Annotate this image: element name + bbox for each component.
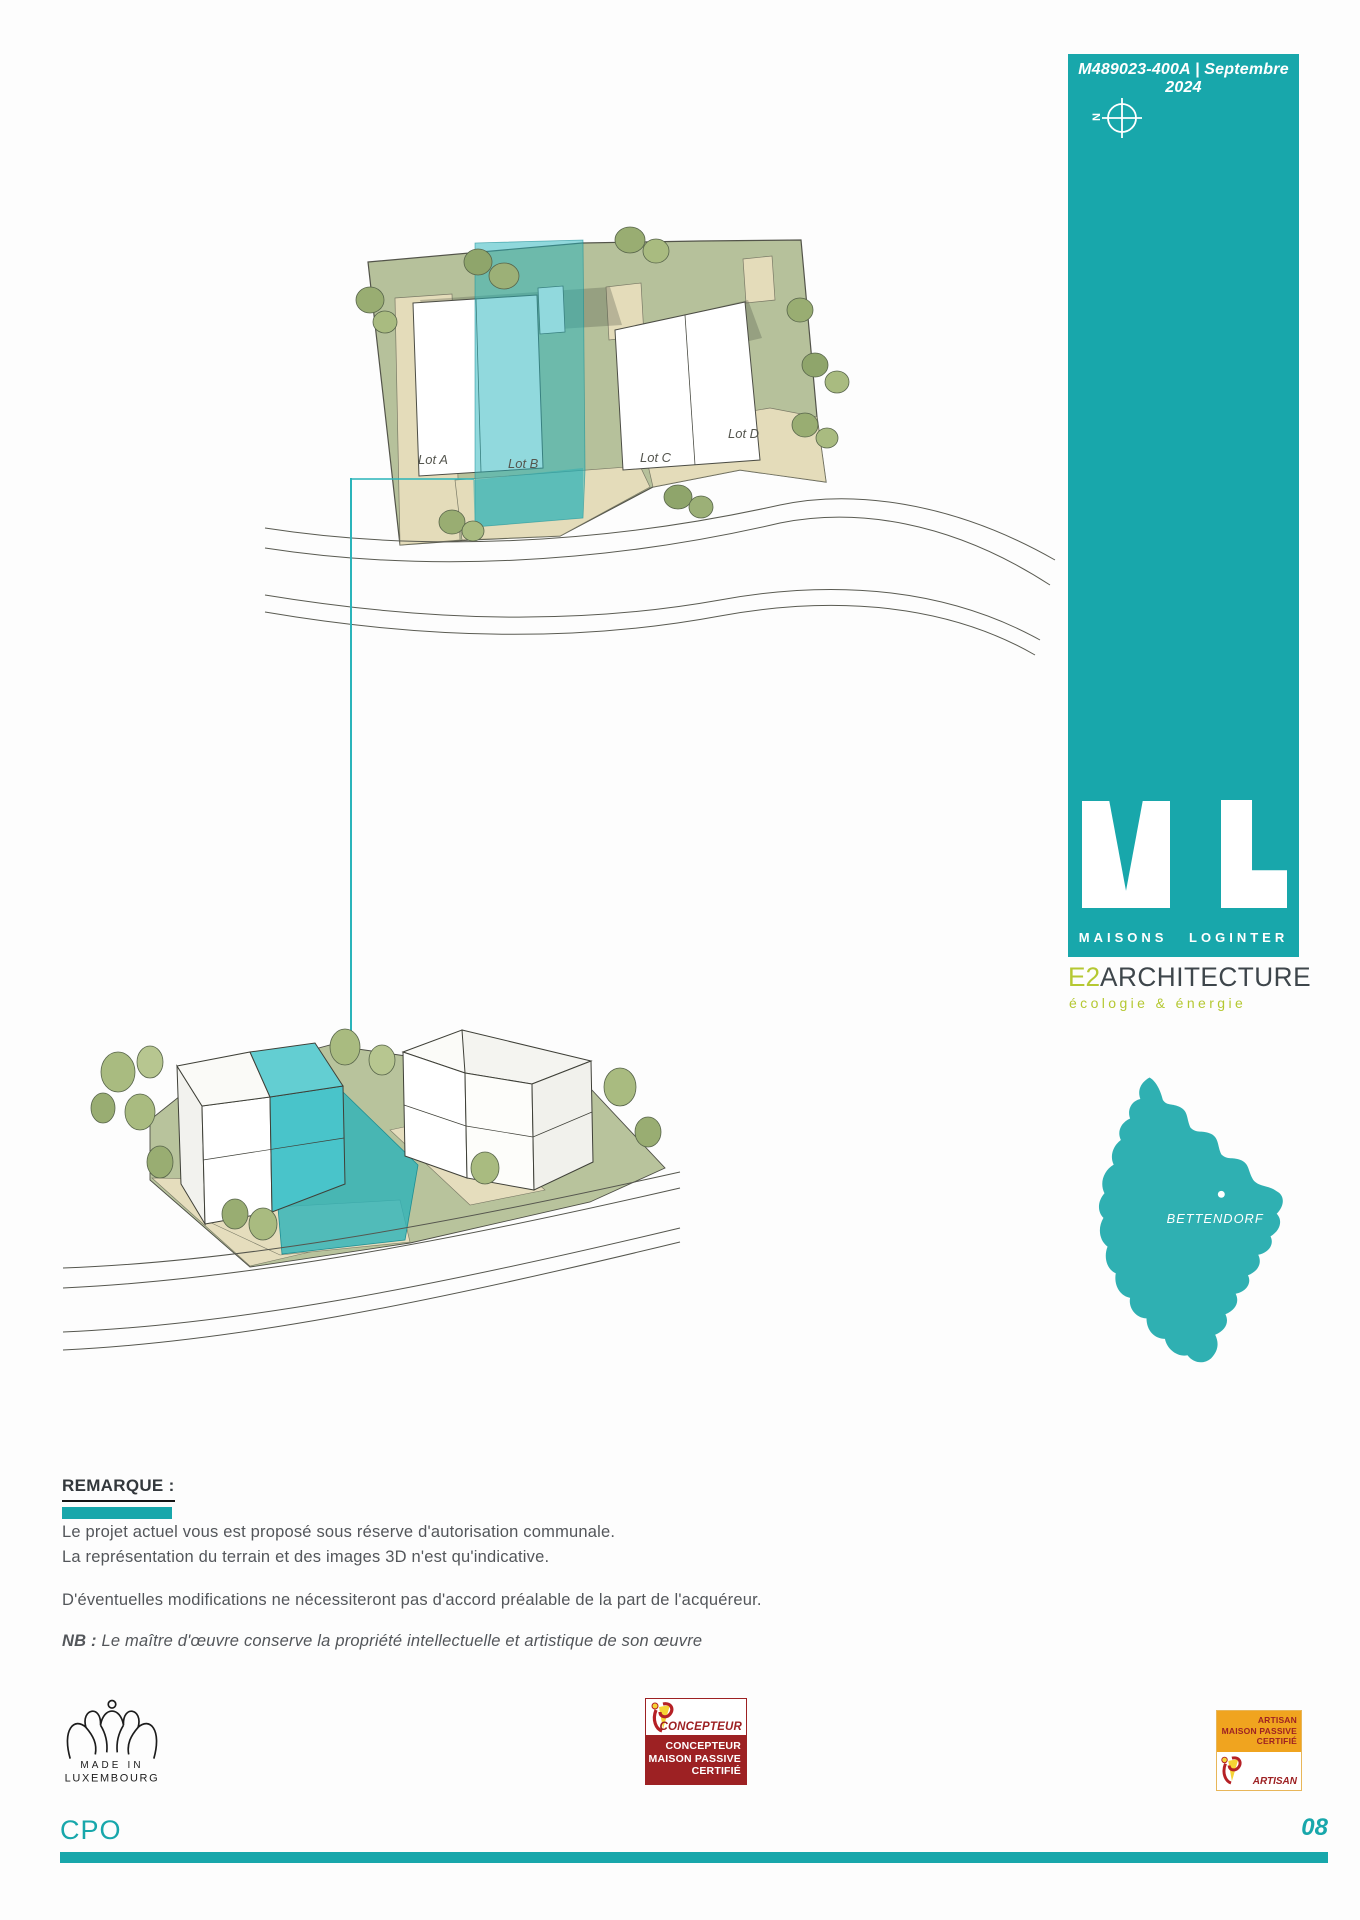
- artisan-badge: ARTISAN MAISON PASSIVE CERTIFIÉ ARTISAN: [1216, 1710, 1302, 1791]
- remark-title: REMARQUE :: [62, 1476, 175, 1502]
- concepteur-line2: MAISON PASSIVE: [648, 1753, 741, 1766]
- logo-letter-m: [1082, 801, 1170, 908]
- concepteur-header: CONCEPTEUR: [659, 1721, 742, 1733]
- concepteur-line3: CERTIFIÉ: [648, 1765, 741, 1778]
- crown-icon: [67, 1701, 156, 1759]
- lot-b-leader-vertical: [350, 478, 352, 1048]
- artisan-footer: ARTISAN: [1253, 1776, 1297, 1787]
- artisan-line2: MAISON PASSIVE: [1219, 1726, 1297, 1737]
- concepteur-badge: CONCEPTEUR CONCEPTEUR MAISON PASSIVE CER…: [645, 1698, 747, 1785]
- remark-accent-bar: [62, 1507, 172, 1519]
- artisan-badge-top: ARTISAN MAISON PASSIVE CERTIFIÉ: [1217, 1711, 1301, 1752]
- made-in-line2: LUXEMBOURG: [65, 1773, 160, 1785]
- remark-line-1: Le projet actuel vous est proposé sous r…: [62, 1520, 615, 1545]
- concepteur-badge-top: CONCEPTEUR: [646, 1699, 746, 1735]
- nb-text: Le maître d'œuvre conserve la propriété …: [97, 1632, 703, 1650]
- lot-a-label: Lot A: [418, 452, 448, 467]
- logo-wordmark: MAISONS LOGINTER: [1068, 930, 1299, 945]
- town-marker-dot: [1218, 1191, 1225, 1198]
- made-in-luxembourg-logo: MADE IN LUXEMBOURG: [56, 1698, 168, 1790]
- artisan-line3: CERTIFIÉ: [1219, 1736, 1297, 1747]
- architect-logo: E2ARCHITECTURE: [1068, 962, 1292, 993]
- page-number: 08: [1268, 1814, 1328, 1842]
- lot-d-label: Lot D: [728, 426, 759, 441]
- concepteur-line1: CONCEPTEUR: [648, 1740, 741, 1753]
- maisons-loginter-logo: MAISONS LOGINTER: [1068, 54, 1299, 957]
- concepteur-badge-bottom: CONCEPTEUR MAISON PASSIVE CERTIFIÉ: [646, 1735, 746, 1784]
- lot-b-label: Lot B: [508, 456, 539, 471]
- logo-letter-l: [1221, 800, 1287, 908]
- site-3d-view: [55, 1015, 705, 1410]
- remark-line-3: D'éventuelles modifications ne nécessite…: [62, 1588, 762, 1613]
- artisan-line1: ARTISAN: [1219, 1715, 1297, 1726]
- brochure-page: Lot A Lot B Lot C Lot D: [0, 0, 1360, 1920]
- architect-tagline: écologie & énergie: [1069, 995, 1300, 1011]
- sidebar-panel: M489023-400A | Septembre 2024 N MAISONS …: [1068, 54, 1299, 957]
- remark-line-2: La représentation du terrain et des imag…: [62, 1545, 615, 1570]
- remark-paragraph-2: D'éventuelles modifications ne nécessite…: [62, 1588, 762, 1613]
- architect-prefix: E2: [1068, 962, 1100, 992]
- nb-label: NB :: [62, 1632, 97, 1650]
- architect-name: ARCHITECTURE: [1100, 962, 1311, 992]
- town-label: BETTENDORF: [1167, 1211, 1264, 1226]
- footer-code: CPO: [60, 1815, 122, 1846]
- passive-house-icon-artisan: [1219, 1755, 1243, 1787]
- site-plan-top-view: Lot A Lot B Lot C Lot D: [250, 180, 1070, 660]
- footer-bar: [60, 1852, 1328, 1863]
- remark-paragraph-1: Le projet actuel vous est proposé sous r…: [62, 1520, 615, 1570]
- roads-plan: [265, 499, 1055, 655]
- made-in-line1: MADE IN: [80, 1760, 143, 1771]
- luxembourg-map: BETTENDORF: [1085, 1072, 1290, 1372]
- lot-c-label: Lot C: [640, 450, 672, 465]
- remark-nb: NB : Le maître d'œuvre conserve la propr…: [62, 1629, 702, 1654]
- artisan-badge-bottom: ARTISAN: [1217, 1752, 1301, 1790]
